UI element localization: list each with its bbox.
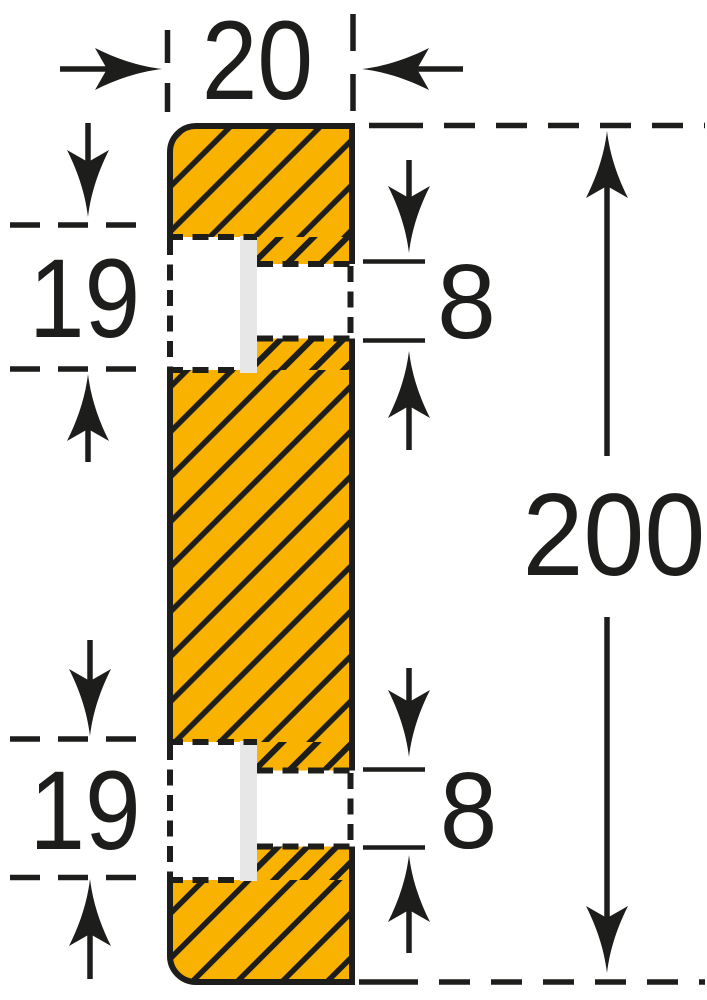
svg-text:19: 19 bbox=[29, 748, 140, 873]
svg-text:8: 8 bbox=[437, 243, 496, 361]
svg-text:200: 200 bbox=[522, 470, 705, 601]
svg-text:8: 8 bbox=[440, 750, 498, 872]
svg-text:20: 20 bbox=[202, 0, 313, 123]
svg-text:19: 19 bbox=[29, 236, 140, 361]
